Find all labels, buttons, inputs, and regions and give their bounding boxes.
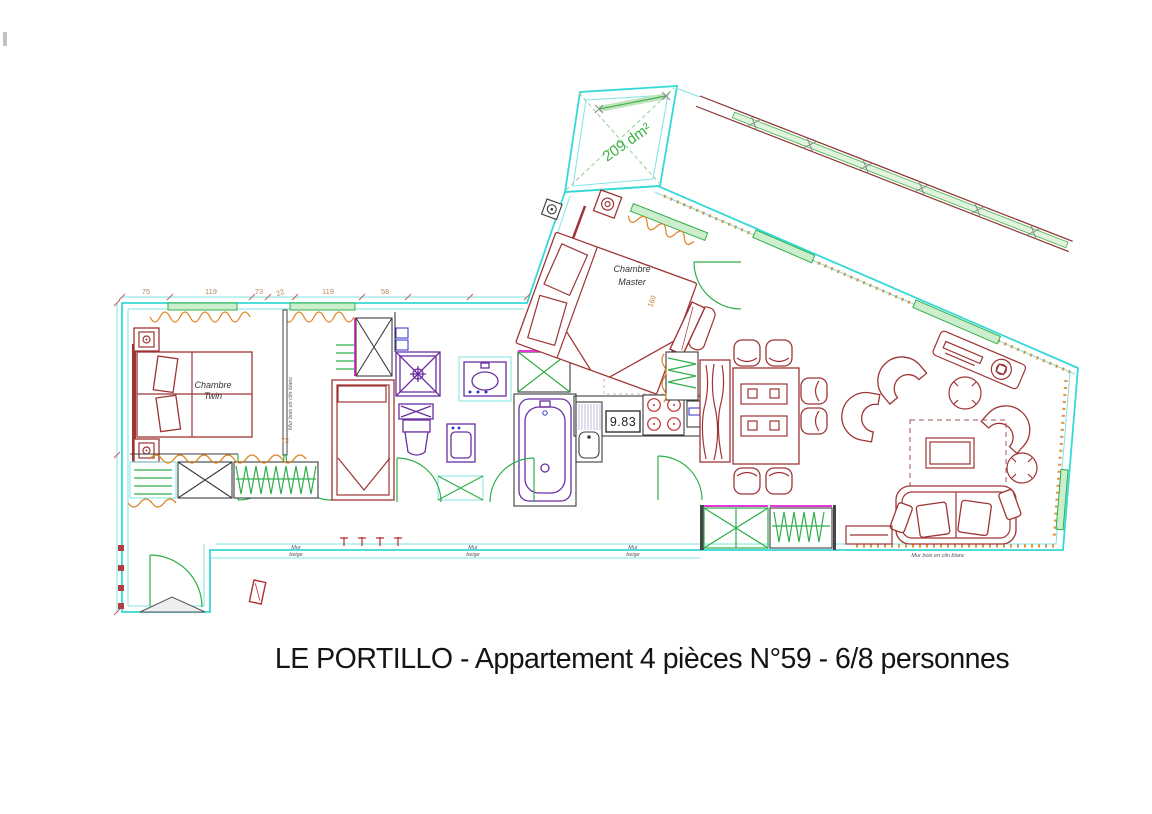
armchair — [838, 389, 880, 442]
washing-machine — [447, 424, 475, 462]
dining-chair — [801, 408, 827, 434]
wall-label-mur-beige: Mur beige — [626, 545, 639, 558]
floor-plan-drawing: 209 dm² 75 119 73 22 119 58 — [0, 0, 1152, 814]
dining-chair — [801, 378, 827, 404]
room-label: Chambre — [613, 264, 650, 274]
dimension-label: 119 — [205, 287, 217, 296]
radiator — [284, 312, 354, 322]
coffee-table — [926, 438, 974, 468]
railing-connector — [676, 88, 700, 97]
svg-text:Mur: Mur — [628, 545, 639, 551]
room-label: Chambre — [194, 380, 231, 390]
room-label: Twin — [204, 391, 222, 401]
side-table-round — [949, 377, 981, 409]
dining-chair — [766, 340, 792, 366]
partition-wall: Mur bois en clin blanc 73 — [281, 310, 294, 455]
rug — [910, 420, 1006, 488]
shower — [396, 352, 440, 396]
door-arc — [694, 262, 741, 309]
closet — [356, 318, 392, 376]
svg-text:Mur: Mur — [291, 545, 302, 551]
living-area — [838, 330, 1040, 544]
nightstand — [593, 190, 621, 218]
meter-value: 9.83 — [610, 415, 636, 429]
dining-chair — [734, 340, 760, 366]
wall-stub — [833, 505, 836, 550]
coat-hooks — [340, 537, 402, 546]
dimension-label: 73 — [255, 287, 263, 296]
washbasin — [459, 357, 511, 401]
armchair — [981, 396, 1039, 453]
entry — [118, 455, 318, 612]
door-stop — [249, 580, 265, 604]
nightstand — [134, 328, 159, 351]
kitchen-sink-unit — [576, 402, 602, 462]
wall-stud — [118, 545, 124, 551]
nightstand — [134, 439, 159, 462]
wall-label-wood: Mur bois en clin blanc — [911, 553, 964, 559]
sofa — [889, 486, 1021, 544]
window — [168, 303, 237, 310]
floor-plan-page: 209 dm² 75 119 73 22 119 58 — [0, 0, 1152, 814]
dimension-label: 119 — [322, 287, 334, 296]
wall-stud — [118, 565, 124, 571]
bathroom — [396, 351, 576, 506]
wall-label-wood: Mur bois en clin blanc — [288, 377, 294, 430]
shelf — [336, 345, 354, 369]
shower-tray — [438, 476, 483, 500]
dimension-label: 58 — [381, 287, 389, 296]
toilet — [403, 420, 430, 455]
wall-stud — [118, 585, 124, 591]
shelf-box — [396, 328, 408, 338]
dimension-chain: 75 119 73 22 119 58 — [119, 287, 530, 300]
dimension-label: 75 — [142, 287, 150, 296]
svg-text:beige: beige — [289, 552, 302, 558]
radiator — [150, 312, 250, 322]
svg-text:beige: beige — [626, 552, 639, 558]
closet-hangers — [770, 506, 832, 548]
cabinet — [662, 352, 698, 402]
room-label: Master — [618, 277, 647, 287]
wall-dim-marker: 73 — [281, 438, 289, 445]
dining-chair — [734, 468, 760, 494]
svg-text:beige: beige — [466, 552, 479, 558]
terrace-railing — [696, 96, 1073, 252]
scan-artifact — [3, 32, 7, 46]
electric-meter: 9.83 — [606, 411, 640, 432]
balcony-area-label: 209 dm² — [600, 120, 655, 165]
shelf-box — [396, 340, 408, 350]
single-bed — [332, 380, 394, 500]
twin-bed — [137, 352, 252, 437]
bathtub — [514, 394, 576, 506]
corner-post — [542, 199, 563, 220]
side-table — [846, 526, 892, 544]
cooktop — [643, 395, 684, 435]
bench — [700, 360, 730, 462]
closet-doors — [704, 506, 768, 548]
dining-chair — [766, 468, 792, 494]
master-radiator — [627, 204, 708, 250]
window — [290, 303, 355, 310]
window — [753, 230, 815, 263]
entry-wardrobe — [128, 455, 318, 507]
window — [913, 300, 1001, 344]
wall-label-mur-beige: Mur beige — [289, 545, 302, 558]
plan-title: LE PORTILLO - Appartement 4 pièces N°59 … — [275, 643, 1010, 675]
washbasin-cabinet — [399, 404, 433, 419]
side-table-round — [1007, 453, 1037, 483]
wall-label-mur-beige: Mur beige — [466, 545, 479, 558]
svg-text:Mur: Mur — [468, 545, 479, 551]
wall-stud — [118, 603, 124, 609]
